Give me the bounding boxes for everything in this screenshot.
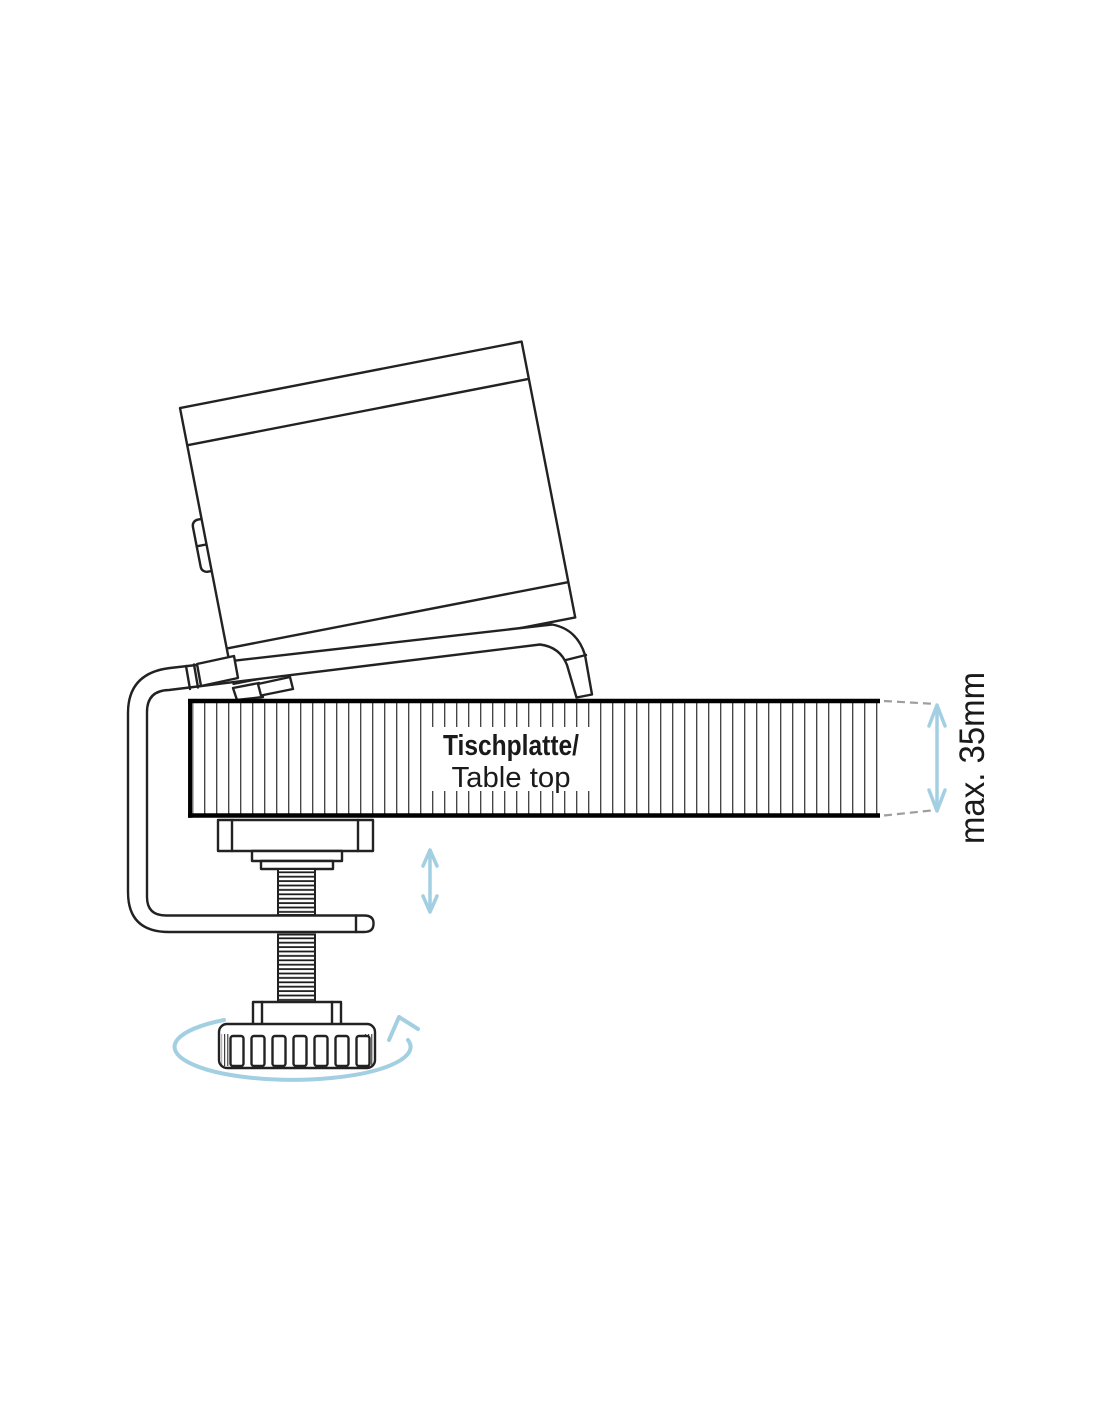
clamp-mount-diagram: Tischplatte/ Table top xyxy=(0,0,1100,1422)
dimension-leader-lines xyxy=(884,701,936,816)
knob-edge-shade-left xyxy=(222,1034,230,1066)
device-foot-rear xyxy=(258,677,293,696)
knurl-ridge xyxy=(357,1036,370,1066)
table-label-line2: Table top xyxy=(452,762,571,794)
dimension-arrow-icon xyxy=(929,705,945,811)
table-top: Tischplatte/ Table top xyxy=(188,699,882,818)
pad-step-lower xyxy=(261,861,333,869)
clamp-pad xyxy=(218,820,373,851)
pad-step-upper xyxy=(252,851,342,861)
knurl-ridge xyxy=(315,1036,328,1066)
height-adjust-arrow-icon xyxy=(423,850,437,912)
dimension-label: max. 35mm xyxy=(953,672,992,844)
knurl-ridge xyxy=(273,1036,286,1066)
table-label-line1: Tischplatte/ xyxy=(443,730,579,762)
leader-line-bottom xyxy=(884,810,936,816)
clamp-knob xyxy=(219,1002,375,1068)
knob-hub xyxy=(253,1002,341,1025)
diagram-svg: Tischplatte/ Table top xyxy=(0,0,1100,1422)
leader-line-top xyxy=(884,701,936,704)
rotation-arrow-head xyxy=(389,1017,418,1040)
threaded-rod-upper xyxy=(278,869,315,915)
threaded-rod-lower xyxy=(278,935,315,1003)
knurl-ridge xyxy=(231,1036,244,1066)
clamp-screw-assembly xyxy=(218,820,373,1003)
knurl-ridge xyxy=(294,1036,307,1066)
knurl-ridge xyxy=(336,1036,349,1066)
knurl-ridge xyxy=(252,1036,265,1066)
